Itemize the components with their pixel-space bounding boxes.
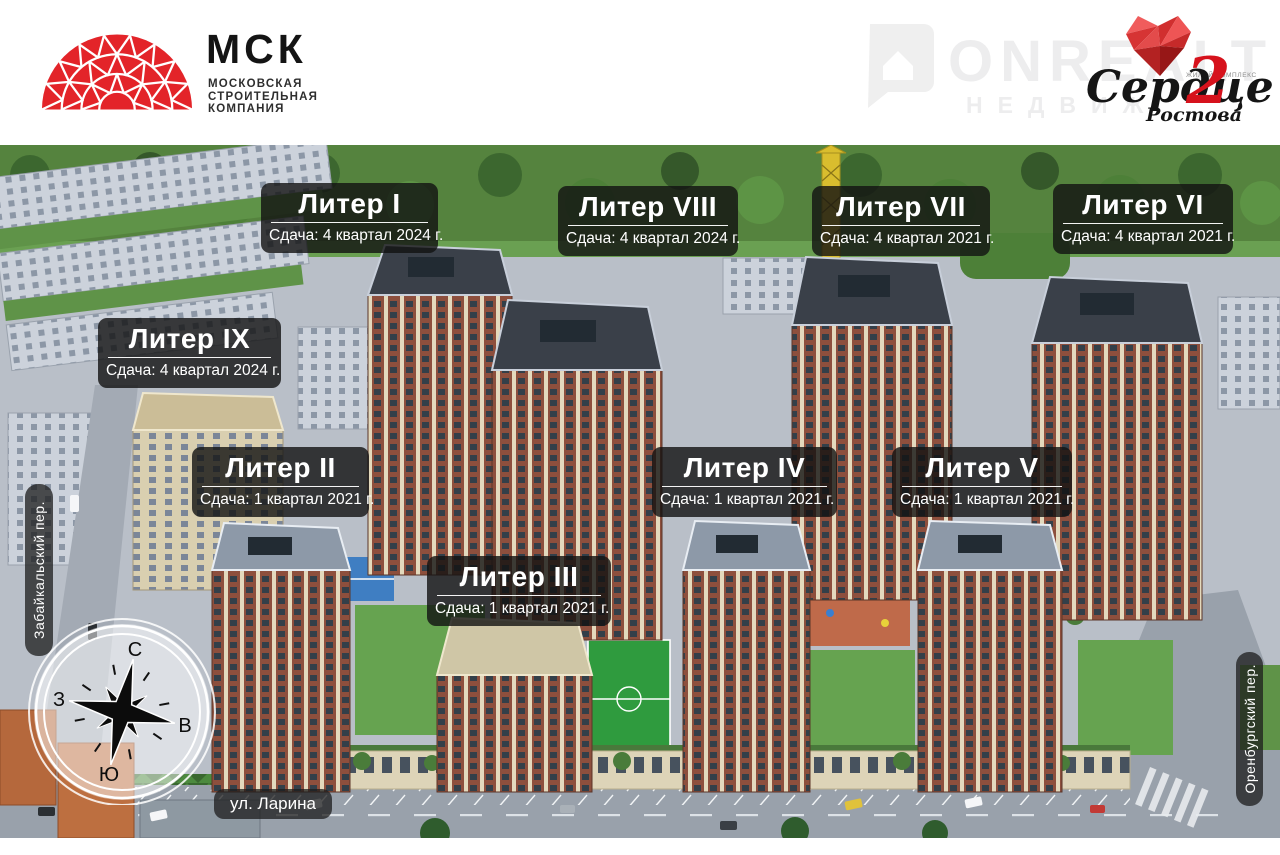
divider xyxy=(271,222,428,223)
msk-dome-logo-icon xyxy=(38,30,196,112)
divider xyxy=(108,357,271,358)
compass-east: В xyxy=(178,715,191,737)
building-name: Литер I xyxy=(269,187,430,221)
tower-liter-5 xyxy=(918,521,1062,792)
msk-name-line3: КОМПАНИЯ xyxy=(208,103,318,116)
msk-name-line1: МОСКОВСКАЯ xyxy=(208,78,318,91)
building-name: Литер IX xyxy=(106,322,273,356)
building-name: Литер IV xyxy=(660,451,829,485)
divider xyxy=(902,486,1062,487)
building-name: Литер III xyxy=(435,560,603,594)
neighbor-slab-mid xyxy=(298,327,374,429)
building-name: Литер II xyxy=(200,451,361,485)
building-name: Литер VI xyxy=(1061,188,1225,222)
building-label-liter-7: Литер VII Сдача: 4 квартал 2021 г. xyxy=(812,186,990,256)
building-label-liter-2: Литер II Сдача: 1 квартал 2021 г. xyxy=(192,447,369,517)
compass-south: Ю xyxy=(99,764,119,786)
building-delivery: Сдача: 4 квартал 2024 г. xyxy=(106,361,273,380)
compass-rose: С В Ю З xyxy=(27,615,217,805)
building-delivery: Сдача: 1 квартал 2021 г. xyxy=(660,490,829,509)
building-delivery: Сдача: 1 квартал 2021 г. xyxy=(435,599,603,618)
onrealt-pin-icon xyxy=(858,18,938,108)
divider xyxy=(568,225,728,226)
page: МСК МОСКОВСКАЯ СТРОИТЕЛЬНАЯ КОМПАНИЯ ONR… xyxy=(0,0,1280,855)
building-name: Литер VIII xyxy=(566,190,730,224)
neighbor-buildings-right xyxy=(1218,297,1280,409)
building-delivery: Сдача: 1 квартал 2021 г. xyxy=(200,490,361,509)
msk-name-line2: СТРОИТЕЛЬНАЯ xyxy=(208,91,318,104)
building-delivery: Сдача: 4 квартал 2024 г. xyxy=(269,226,430,245)
building-delivery: Сдача: 4 квартал 2021 г. xyxy=(1061,227,1225,246)
street-label-zabaikalsky: Забайкальский пер. xyxy=(25,484,53,656)
street-name: Забайкальский пер. xyxy=(31,501,47,639)
tower-liter-1 xyxy=(368,245,512,575)
tower-liter-4 xyxy=(683,521,810,792)
building-delivery: Сдача: 4 квартал 2021 г. xyxy=(820,229,982,248)
building-name: Литер VII xyxy=(820,190,982,224)
msk-abbr: МСК xyxy=(206,26,307,73)
street-label-orenburgsky: Оренбургский пер. xyxy=(1236,652,1263,806)
building-label-liter-5: Литер V Сдача: 1 квартал 2021 г. xyxy=(892,447,1072,517)
compass-west: З xyxy=(53,689,65,711)
tower-liter-3 xyxy=(437,618,592,792)
tower-liter-2 xyxy=(212,523,350,792)
complex-number: 2 xyxy=(1186,44,1231,119)
divider xyxy=(822,225,980,226)
building-label-liter-9: Литер IX Сдача: 4 квартал 2024 г. xyxy=(98,318,281,388)
compass-north: С xyxy=(128,639,142,661)
building-label-liter-6: Литер VI Сдача: 4 квартал 2021 г. xyxy=(1053,184,1233,254)
building-label-liter-8: Литер VIII Сдача: 4 квартал 2024 г. xyxy=(558,186,738,256)
street-label-larina: ул. Ларина xyxy=(214,789,332,819)
divider xyxy=(202,486,359,487)
divider xyxy=(1063,223,1223,224)
building-label-liter-3: Литер III Сдача: 1 квартал 2021 г. xyxy=(427,556,611,626)
football-field xyxy=(588,640,670,758)
building-label-liter-4: Литер IV Сдача: 1 квартал 2021 г. xyxy=(652,447,837,517)
header: МСК МОСКОВСКАЯ СТРОИТЕЛЬНАЯ КОМПАНИЯ ONR… xyxy=(0,0,1280,145)
building-delivery: Сдача: 4 квартал 2024 г. xyxy=(566,229,730,248)
building-name: Литер V xyxy=(900,451,1064,485)
street-name: Оренбургский пер. xyxy=(1242,664,1258,794)
building-delivery: Сдача: 1 квартал 2021 г. xyxy=(900,490,1064,509)
divider xyxy=(437,595,601,596)
msk-company-name: МОСКОВСКАЯ СТРОИТЕЛЬНАЯ КОМПАНИЯ xyxy=(208,78,318,116)
divider xyxy=(662,486,827,487)
building-label-liter-1: Литер I Сдача: 4 квартал 2024 г. xyxy=(261,183,438,253)
